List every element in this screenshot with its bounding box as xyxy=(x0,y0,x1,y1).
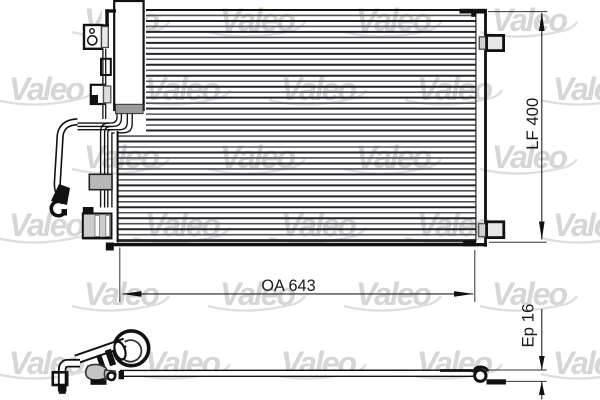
svg-text:Valeo: Valeo xyxy=(553,71,600,107)
svg-text:Ep 16: Ep 16 xyxy=(519,304,538,348)
svg-text:Valeo: Valeo xyxy=(553,345,600,381)
svg-text:LF 400: LF 400 xyxy=(523,98,542,150)
svg-text:OA 643: OA 643 xyxy=(261,277,315,295)
svg-text:Valeo: Valeo xyxy=(9,71,85,107)
svg-text:Valeo: Valeo xyxy=(553,207,600,243)
